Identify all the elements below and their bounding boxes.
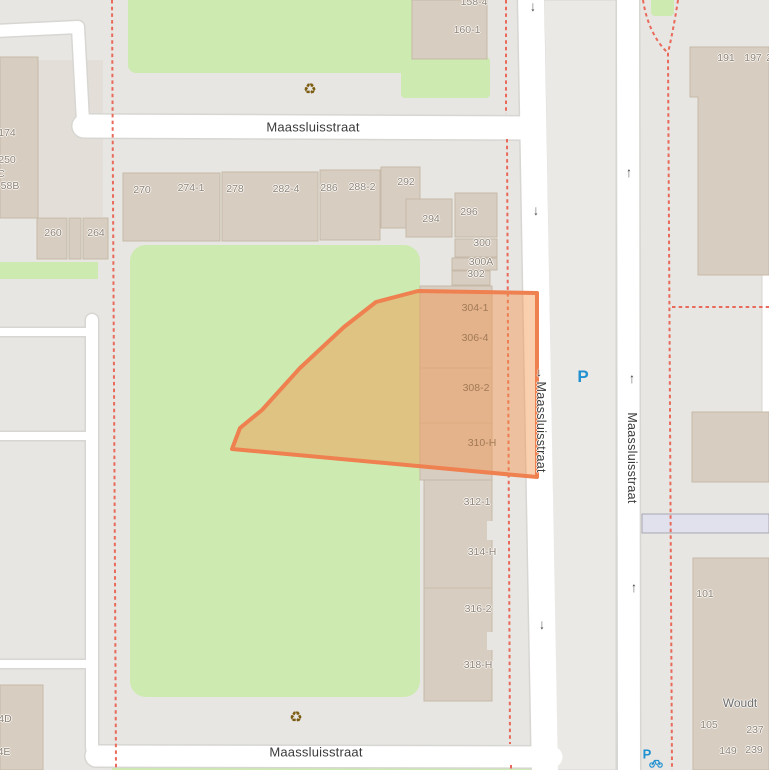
parcel-lanes	[0, 332, 90, 664]
building-notch	[487, 521, 493, 540]
transit-band	[642, 514, 769, 533]
map-base-layer	[0, 0, 769, 770]
road-maassluisstraat-top	[84, 126, 527, 128]
road-west-service	[92, 320, 102, 756]
map-canvas[interactable]: Maassluisstraat Maassluisstraat →Maasslu…	[0, 0, 769, 770]
road-maassluisstraat-east-lane	[628, 0, 629, 770]
road-maassluisstraat-bottom	[96, 756, 552, 757]
building-notch	[487, 632, 493, 650]
